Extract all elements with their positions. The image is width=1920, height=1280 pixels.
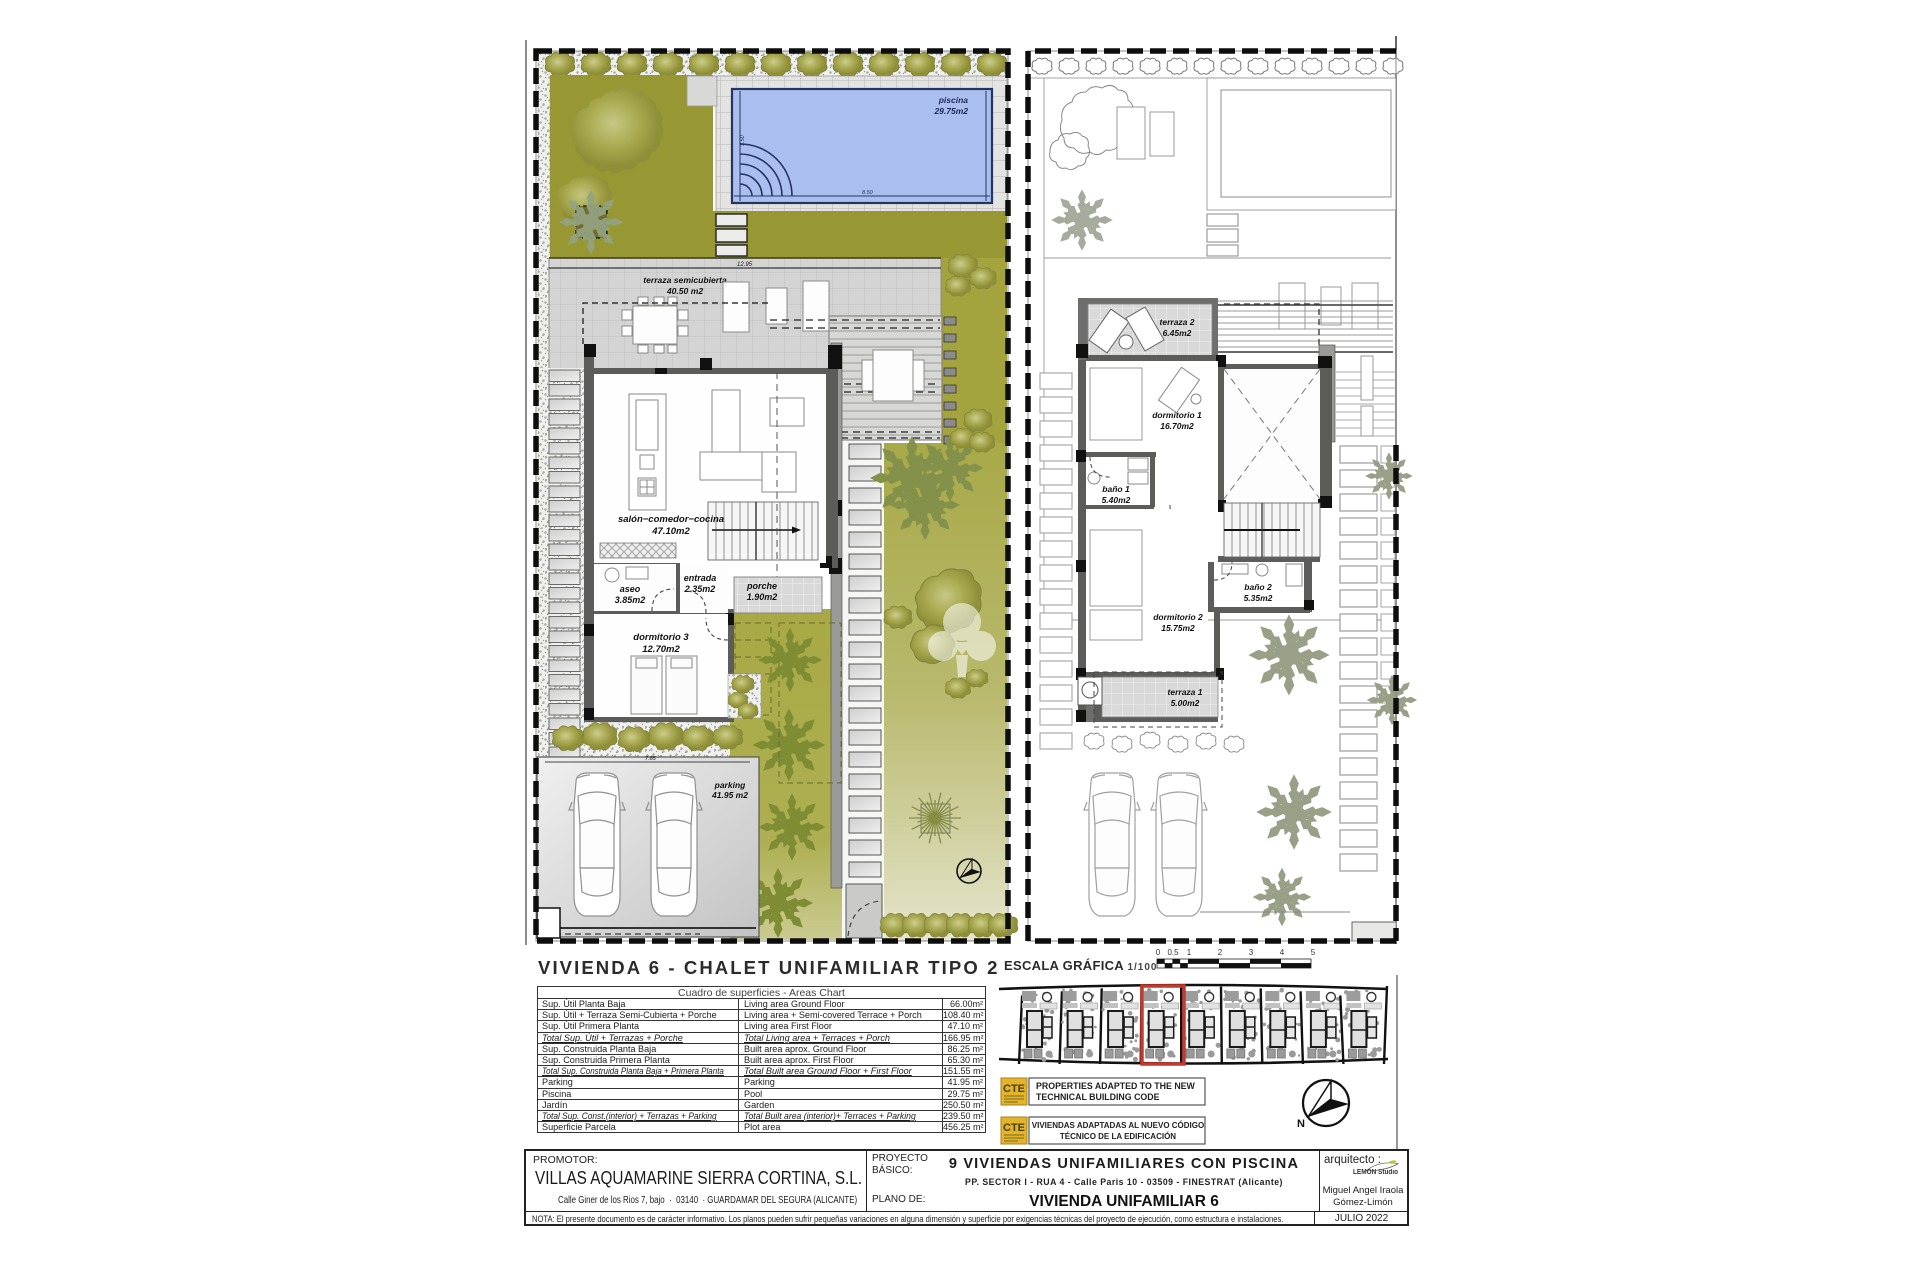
svg-text:2: 2 [1218,948,1223,957]
svg-text:salón−comedor−cocina: salón−comedor−cocina [618,514,724,525]
svg-text:8.50: 8.50 [862,190,874,196]
svg-text:47.10m2: 47.10m2 [651,526,690,537]
svg-text:CTE: CTE [1003,1122,1025,1134]
svg-text:TÉCNICO DE LA EDIFICACIÓN: TÉCNICO DE LA EDIFICACIÓN [1060,1132,1176,1141]
svg-text:aseo: aseo [620,584,641,594]
svg-text:porche: porche [746,581,777,591]
svg-text:16.70m2: 16.70m2 [1160,421,1194,431]
svg-text:terraza 2: terraza 2 [1160,317,1195,327]
svg-text:entrada: entrada [684,573,717,583]
svg-text:15.75m2: 15.75m2 [1161,623,1195,633]
svg-text:dormitorio 3: dormitorio 3 [633,632,689,643]
svg-text:piscina: piscina [938,95,969,105]
svg-text:12.95: 12.95 [737,262,753,268]
svg-text:baño 2: baño 2 [1244,582,1272,592]
svg-text:40.50 m2: 40.50 m2 [666,286,704,296]
svg-text:5.40m2: 5.40m2 [1102,495,1131,505]
svg-text:41.95 m2: 41.95 m2 [711,790,748,800]
svg-text:0: 0 [1156,948,1161,957]
svg-text:7.85: 7.85 [645,756,657,762]
svg-text:1.90m2: 1.90m2 [747,592,778,602]
svg-text:5: 5 [1311,948,1316,957]
svg-text:5.00m2: 5.00m2 [1171,698,1200,708]
svg-text:0.5: 0.5 [1167,948,1179,957]
svg-text:3: 3 [1249,948,1254,957]
svg-text:29.75m2: 29.75m2 [933,106,968,116]
svg-text:3.50: 3.50 [740,134,746,146]
svg-text:CTE: CTE [1003,1083,1025,1095]
svg-text:parking: parking [714,780,747,790]
svg-text:N: N [1297,1118,1305,1130]
svg-text:1: 1 [1187,948,1192,957]
svg-text:terraza semicubierta: terraza semicubierta [643,275,727,285]
svg-text:2.35m2: 2.35m2 [684,584,716,594]
svg-text:4: 4 [1280,948,1285,957]
svg-text:TECHNICAL BUILDING CODE: TECHNICAL BUILDING CODE [1036,1092,1160,1102]
svg-text:12.70m2: 12.70m2 [642,644,680,655]
svg-text:baño 1: baño 1 [1102,484,1130,494]
svg-text:VIVIENDAS ADAPTADAS AL NUEVO C: VIVIENDAS ADAPTADAS AL NUEVO CÓDIGO [1032,1121,1204,1130]
svg-text:5.35m2: 5.35m2 [1244,593,1273,603]
svg-text:3.85m2: 3.85m2 [615,595,646,605]
svg-text:terraza 1: terraza 1 [1168,687,1203,697]
svg-text:6.45m2: 6.45m2 [1163,328,1192,338]
svg-text:PROPERTIES ADAPTED TO THE NEW: PROPERTIES ADAPTED TO THE NEW [1036,1081,1196,1091]
svg-text:dormitorio 2: dormitorio 2 [1153,612,1203,622]
